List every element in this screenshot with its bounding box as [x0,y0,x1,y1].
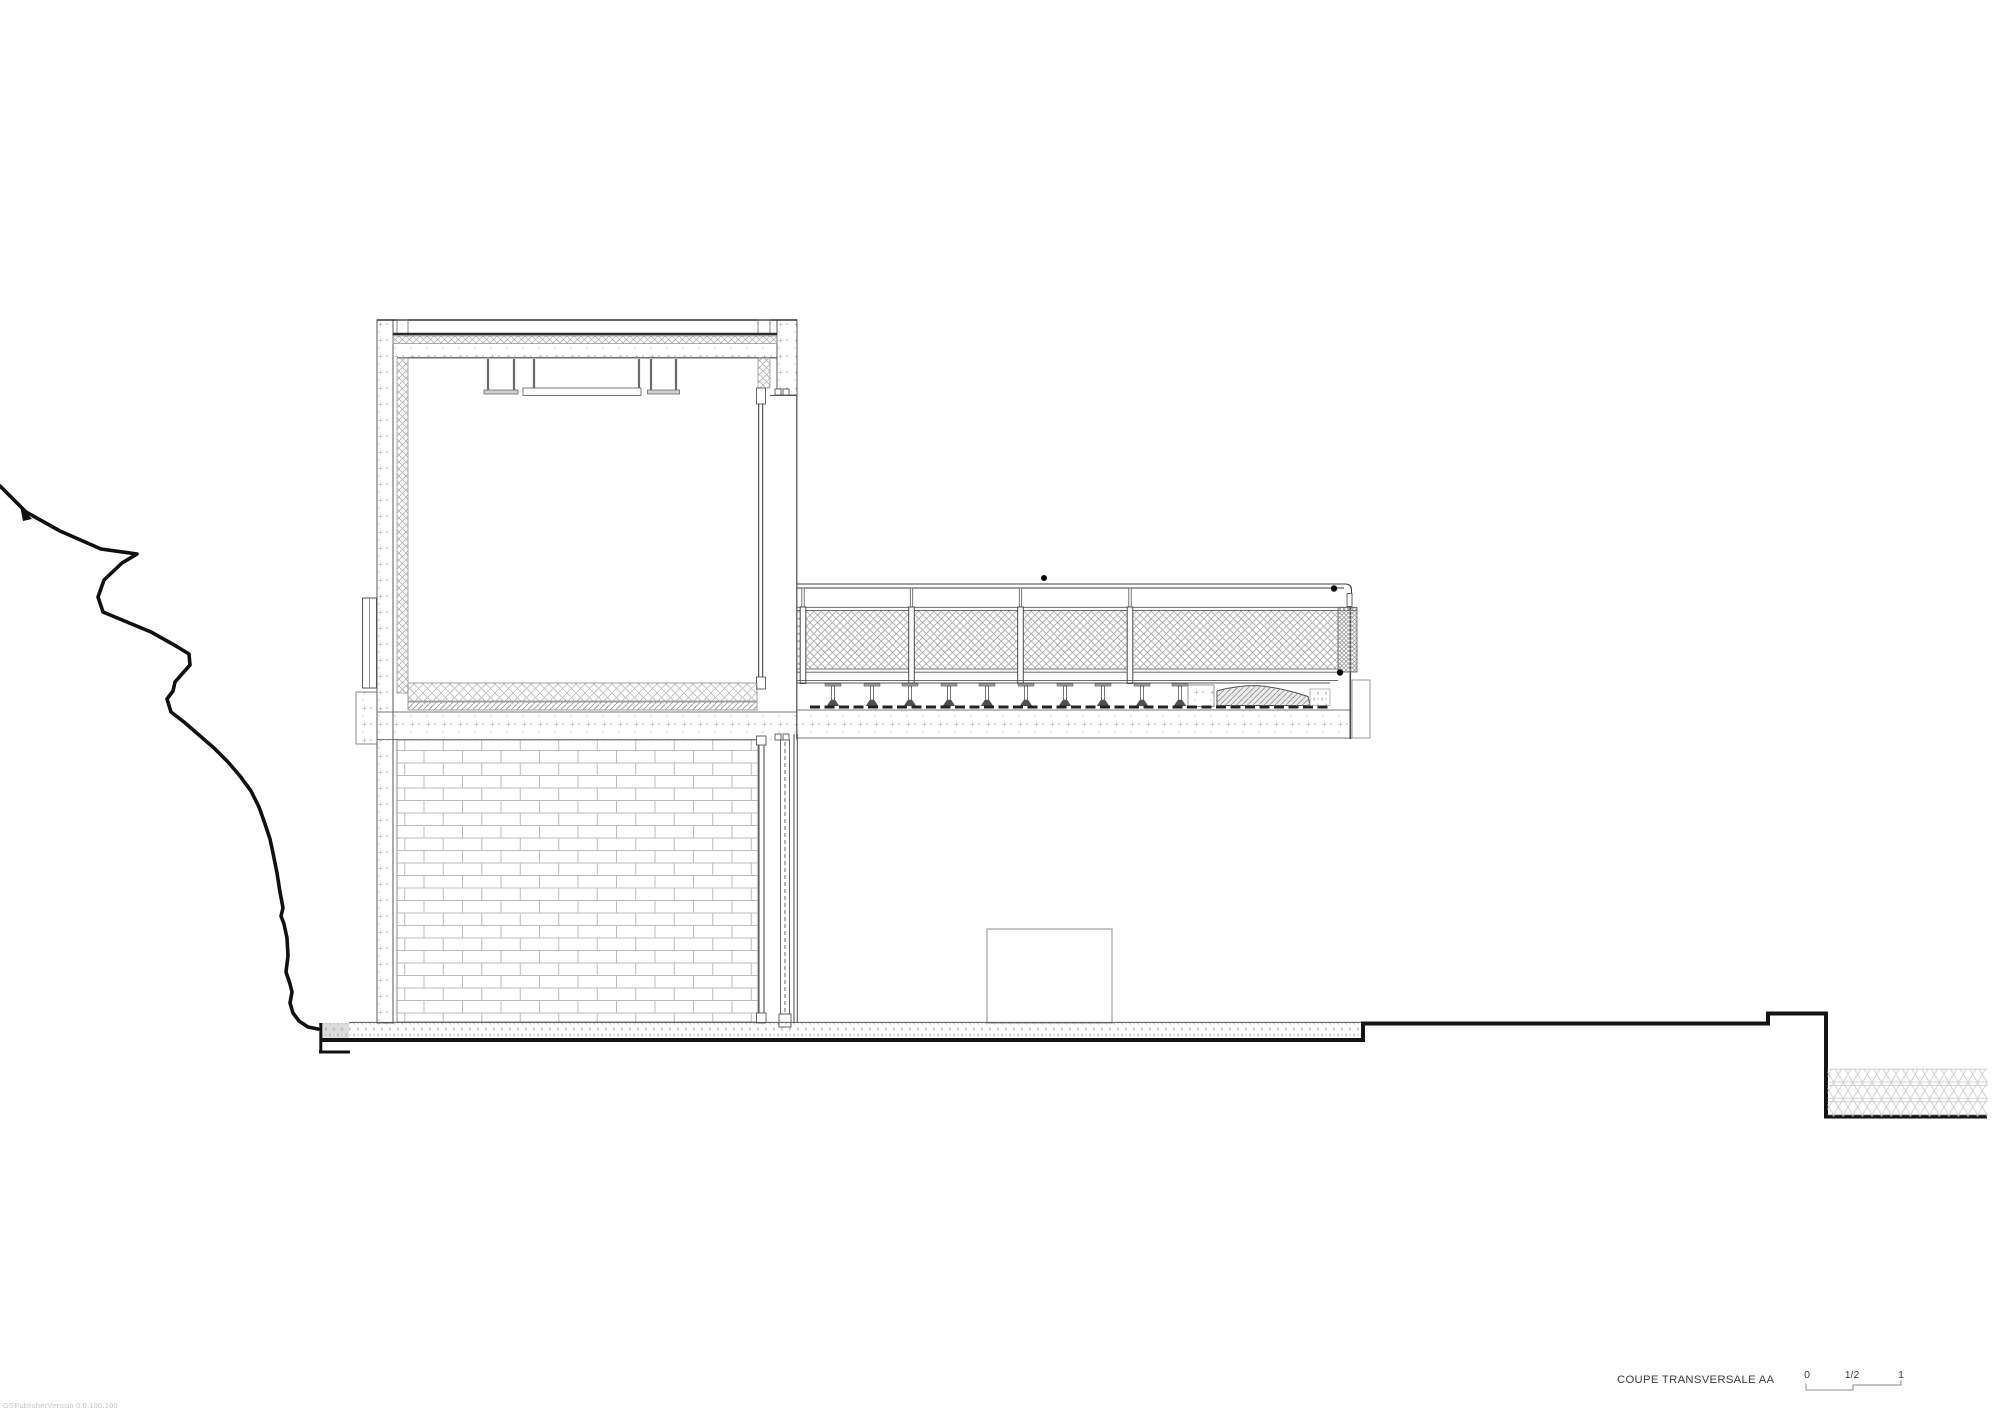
scale-tick-one: 1 [1894,1369,1908,1381]
ground-works [319,1014,1988,1117]
roof-structure [393,344,777,357]
deck-joist [825,684,841,707]
drawing-sheet: COUPE TRANSVERSALE AA 0 1/2 1 GSPublishe… [0,0,2000,1414]
fixing-dot [1041,575,1047,581]
left-wall [377,320,393,1023]
railing-post [909,588,915,684]
door-assembly [757,734,798,1027]
lower-floor-section [397,734,1112,1027]
scale-tick-zero: 0 [1800,1369,1814,1381]
railing-post [1127,588,1133,684]
slab-under-terrace [797,710,1352,738]
interior-floor-buildup [408,683,757,710]
terrain-profile [0,486,318,1029]
window-strip-left [363,598,377,688]
publisher-watermark: GSPublisherVersion 0.0.100.100 [3,1401,118,1410]
deck-joist [1134,684,1150,707]
slab-ledge-left [356,692,377,744]
suspended-ceiling-elements [484,359,680,396]
mesh-infill [797,611,1338,669]
fixing-dot [1337,669,1343,675]
drawing-title: COUPE TRANSVERSALE AA [1617,1374,1774,1386]
handrail [797,584,1352,594]
deck-joist [1057,684,1073,707]
railing-post [1018,588,1024,684]
deck-joist [864,684,880,707]
scale-tick-half: 1/2 [1840,1369,1864,1381]
foundation-box [987,929,1112,1023]
right-wall-upper [777,320,797,395]
slab-under-interior [393,712,797,740]
brick-wall [397,740,758,1022]
railing-post [800,588,806,684]
deck-joist [1095,684,1111,707]
deck-joist [979,684,995,707]
roof-assembly [377,320,797,358]
deck-edge-box [1188,685,1214,707]
wall-lining-right [758,358,770,388]
screed-gravel [1310,689,1330,706]
fixing-dot [1331,585,1337,591]
section-drawing [0,0,2000,1414]
deck-joist [902,684,918,707]
ground-slab-band [349,1023,1365,1038]
mesh-end-anchor [1338,608,1357,673]
wall-lining-left [397,358,408,693]
deck-joist [1172,684,1188,707]
deck-joist [941,684,957,707]
scale-bar-line [1806,1381,1901,1391]
roof-insulation [393,336,777,344]
excavation-pit-hatch [1828,1069,1988,1117]
slab-end-box [1352,680,1370,738]
deck-joist [1018,684,1034,707]
glazing-right [757,404,766,689]
